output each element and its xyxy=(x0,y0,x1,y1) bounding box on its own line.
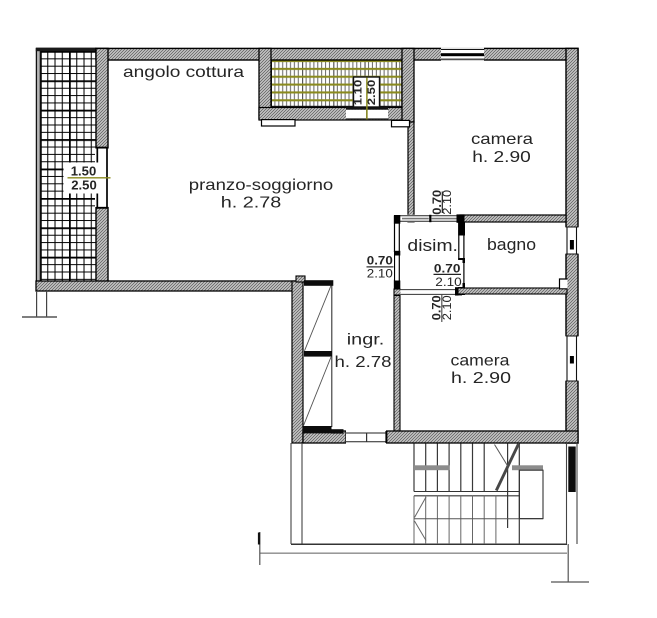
svg-text:1.10: 1.10 xyxy=(352,80,364,106)
svg-text:angolo cottura: angolo cottura xyxy=(123,64,244,81)
svg-text:0.70: 0.70 xyxy=(434,262,461,276)
svg-text:2.10: 2.10 xyxy=(435,275,462,289)
svg-text:2.50: 2.50 xyxy=(71,179,97,193)
svg-text:h. 2.78: h. 2.78 xyxy=(221,195,282,212)
svg-text:h. 2.90: h. 2.90 xyxy=(472,149,531,166)
svg-text:bagno: bagno xyxy=(487,236,536,254)
svg-text:2.50: 2.50 xyxy=(366,80,378,106)
svg-text:camera: camera xyxy=(471,131,533,148)
svg-text:pranzo-soggiorno: pranzo-soggiorno xyxy=(189,177,334,194)
svg-text:2.10: 2.10 xyxy=(442,295,454,320)
svg-text:disim.: disim. xyxy=(407,237,458,255)
svg-text:2.10: 2.10 xyxy=(367,266,393,280)
svg-text:1.50: 1.50 xyxy=(71,165,97,179)
svg-text:camera: camera xyxy=(451,352,510,369)
svg-text:ingr.: ingr. xyxy=(347,332,385,349)
svg-text:h. 2.78: h. 2.78 xyxy=(335,354,392,371)
svg-text:h. 2.90: h. 2.90 xyxy=(451,370,511,387)
svg-text:2.10: 2.10 xyxy=(442,190,454,215)
